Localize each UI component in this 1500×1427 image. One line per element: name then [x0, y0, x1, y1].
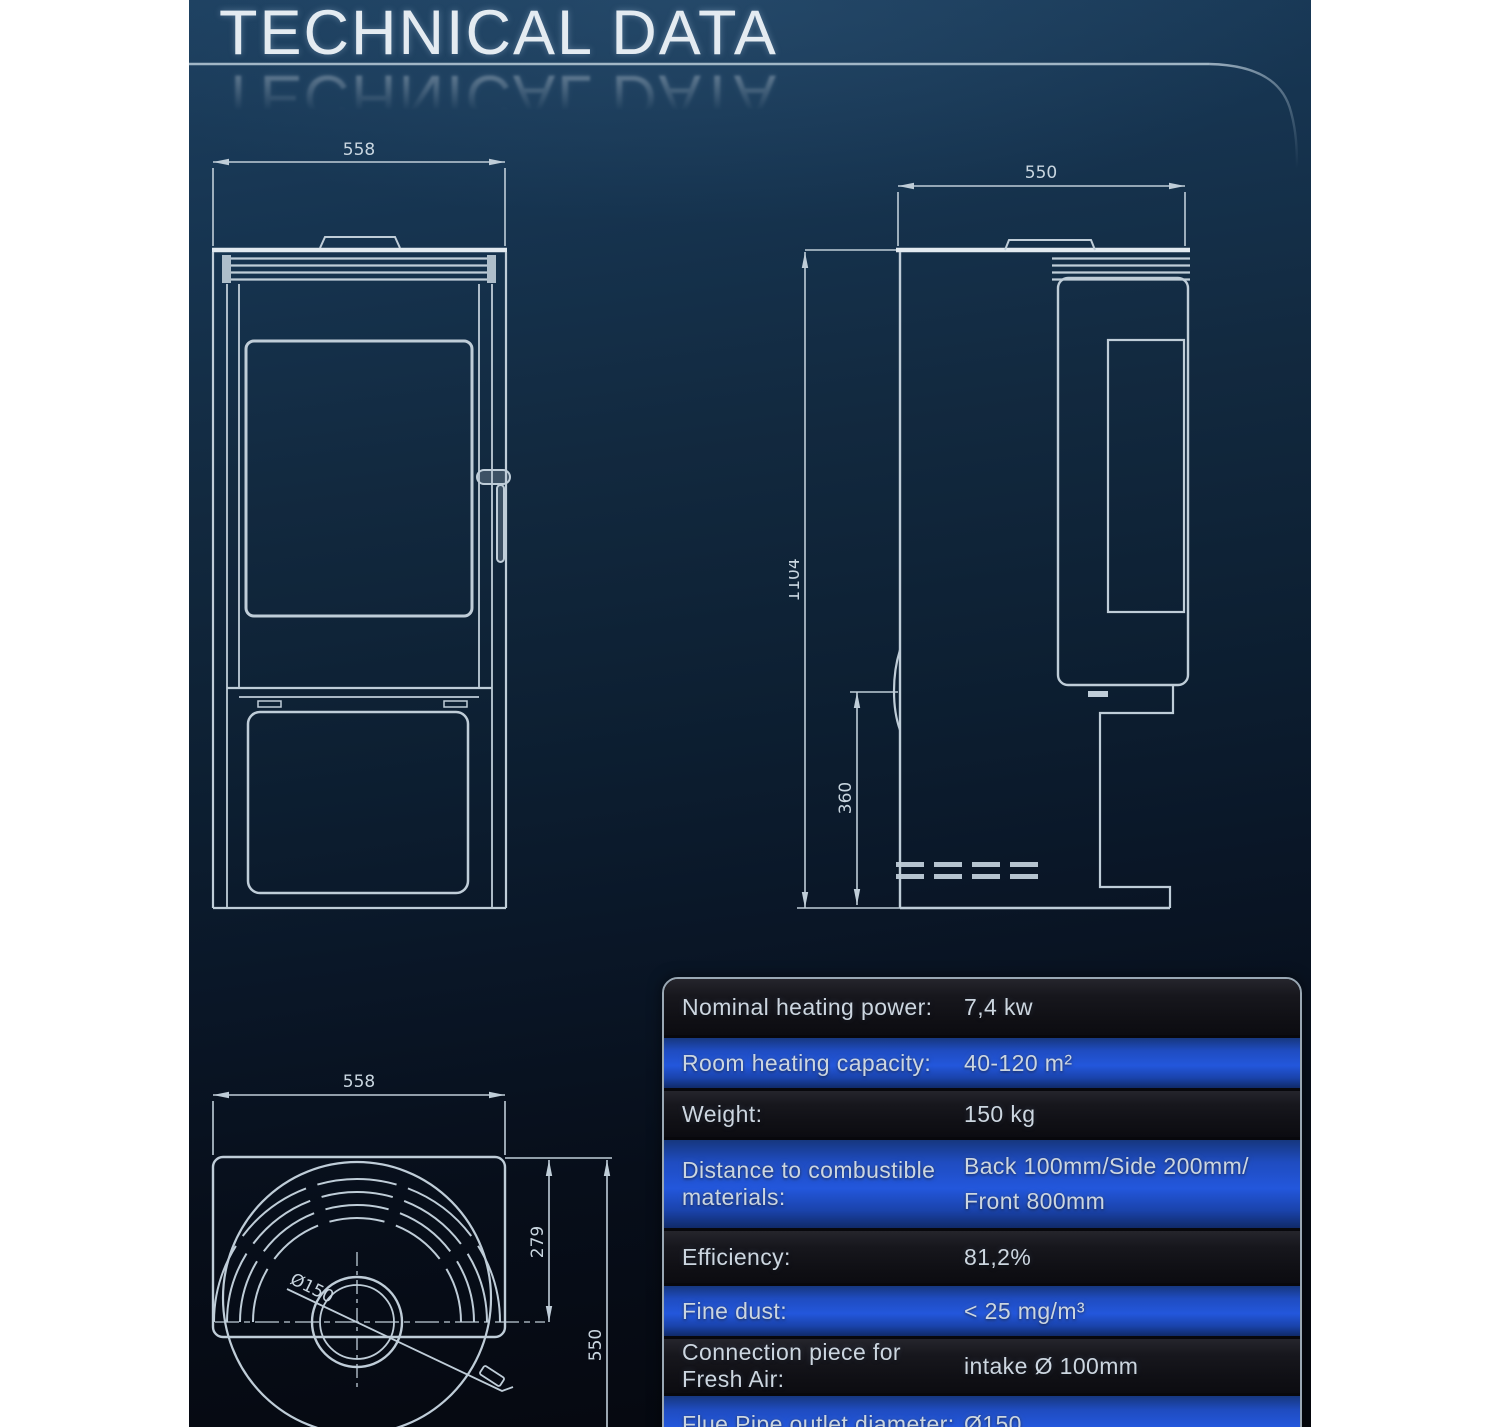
- dimension-label-flue-diameter: Ø150: [287, 1270, 337, 1308]
- row-value: Back 100mm/Side 200mm/ Front 800mm: [964, 1149, 1300, 1219]
- row-label: Distance to combustible materials:: [664, 1157, 964, 1211]
- row-label: Fine dust:: [664, 1298, 964, 1325]
- row-value: 40-120 m²: [964, 1046, 1300, 1081]
- technical-data-sheet: { "title": "TECHNICAL DATA", "front_view…: [0, 0, 1500, 1427]
- row-value: Ø150: [964, 1407, 1300, 1427]
- technical-data-panel: TECHNICAL DATA TECHNICAL DATA 558: [189, 0, 1311, 1427]
- side-view-drawing: 550 1104 360: [789, 130, 1209, 920]
- row-value: 150 kg: [964, 1097, 1300, 1132]
- row-label: Nominal heating power:: [664, 994, 964, 1021]
- top-view-drawing: 558 279 550 Ø150: [189, 1040, 649, 1427]
- dimension-label-side-depth: 550: [1025, 163, 1057, 183]
- row-label: Weight:: [664, 1101, 964, 1128]
- table-row-nominal-heating-power: Nominal heating power: 7,4 kw: [664, 979, 1300, 1035]
- table-row-weight: Weight: 150 kg: [664, 1088, 1300, 1137]
- row-label: Efficiency:: [664, 1244, 964, 1271]
- dimension-label-top-depth: 550: [586, 1329, 606, 1361]
- row-value: 7,4 kw: [964, 990, 1300, 1025]
- row-value: intake Ø 100mm: [964, 1349, 1300, 1384]
- row-label: Connection piece for Fresh Air:: [664, 1339, 964, 1393]
- dimension-label-side-height: 1104: [789, 558, 804, 601]
- table-row-distance-to-combustible-materials: Distance to combustible materials: Back …: [664, 1137, 1300, 1228]
- spec-table: Nominal heating power: 7,4 kw Room heati…: [662, 977, 1302, 1427]
- row-value-line-1: Back 100mm/Side 200mm/: [964, 1149, 1300, 1184]
- table-row-efficiency: Efficiency: 81,2%: [664, 1228, 1300, 1283]
- front-view-drawing: 558: [189, 130, 529, 920]
- row-value: < 25 mg/m³: [964, 1294, 1300, 1329]
- table-row-fresh-air-connection: Connection piece for Fresh Air: intake Ø…: [664, 1336, 1300, 1393]
- dimension-label-top-width: 558: [343, 1072, 375, 1092]
- dimension-label-flue-offset: 279: [528, 1226, 548, 1258]
- row-value-line-2: Front 800mm: [964, 1184, 1300, 1219]
- row-label: Flue Pipe outlet diameter:: [664, 1411, 964, 1427]
- row-value: 81,2%: [964, 1240, 1300, 1275]
- row-label: Room heating capacity:: [664, 1050, 964, 1077]
- table-row-room-heating-capacity: Room heating capacity: 40-120 m²: [664, 1035, 1300, 1088]
- table-row-fine-dust: Fine dust: < 25 mg/m³: [664, 1283, 1300, 1336]
- dimension-label-front-width: 558: [343, 140, 375, 160]
- dimension-label-side-lower-height: 360: [836, 782, 856, 814]
- table-row-flue-pipe-outlet-diameter: Flue Pipe outlet diameter: Ø150: [664, 1393, 1300, 1427]
